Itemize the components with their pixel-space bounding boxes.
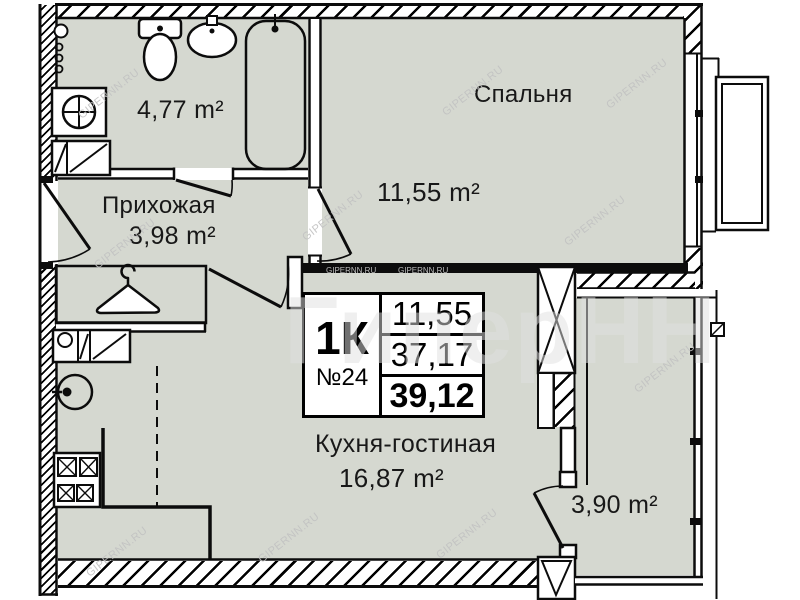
hallway-name-label: Прихожая (102, 192, 216, 220)
cabinet-icon (52, 141, 110, 175)
bedroom-area-label: 11,55 m² (377, 177, 480, 208)
sink-icon (188, 16, 236, 57)
watermark-large: ГиперНН (284, 276, 718, 386)
kitchen-door (209, 263, 289, 307)
balcony-area-label: 3,90 m² (571, 491, 658, 520)
watermark: GIPERNN.RU (398, 266, 448, 275)
bathroom-area-label: 4,77 m² (137, 96, 224, 125)
floor-plan: 4,77 m² Спальня 11,55 m² Прихожая 3,98 m… (0, 0, 800, 600)
entrance-door (40, 176, 90, 269)
french-balcony (702, 58, 768, 232)
stove-icon (54, 453, 100, 507)
toilet-icon (139, 19, 181, 80)
balcony-door (534, 486, 563, 548)
watermark: GIPERNN.RU (326, 266, 376, 275)
kitchen-sink-icon (52, 375, 92, 409)
bottom-window-icon (538, 557, 575, 599)
door-frame-post-top (560, 472, 576, 487)
kitchen-counter-icon (53, 330, 130, 362)
kitchen-name-label: Кухня-гостиная (315, 430, 496, 459)
kitchen-area-label: 16,87 m² (339, 463, 444, 494)
kitchen-window (561, 428, 575, 473)
bedroom-window (684, 53, 703, 247)
bathtub-icon (246, 14, 305, 169)
hanger-icon (97, 265, 159, 313)
